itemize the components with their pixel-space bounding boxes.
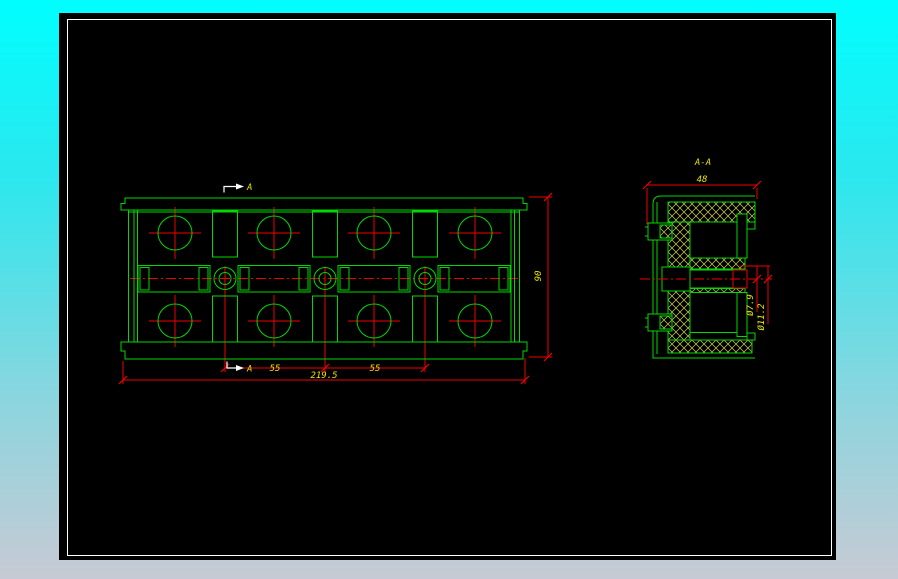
front-view: 55 55 219.5 90 A — [119, 183, 552, 384]
dim-overall-height: 90 — [529, 193, 552, 361]
section-marker-bottom-label: A — [246, 365, 252, 375]
top-slots — [213, 211, 438, 257]
section-marker-top-label: A — [246, 183, 252, 193]
section-view-title: A-A — [694, 158, 711, 168]
cad-drawing-canvas[interactable]: 55 55 219.5 90 A — [59, 13, 836, 560]
section-marker-top: A — [224, 183, 252, 193]
dim-text-section-width: 48 — [697, 175, 708, 185]
desktop-background: 55 55 219.5 90 A — [0, 0, 898, 579]
section-screw — [640, 267, 772, 291]
section-view: A-A 48 — [640, 158, 772, 358]
dim-text-overall-width: 219.5 — [310, 371, 337, 381]
dim-text-pitch-1: 55 — [270, 364, 281, 374]
dim-text-pitch-2: 55 — [370, 364, 381, 374]
cad-drawing: 55 55 219.5 90 A — [59, 13, 836, 560]
section-marker-bottom: A — [227, 362, 252, 375]
dim-text-inner-dia: Ø7.9 — [745, 294, 756, 316]
dim-overall-width: 219.5 — [119, 358, 529, 384]
dim-text-outer-dia: Ø11.2 — [756, 303, 767, 330]
dim-text-overall-height: 90 — [534, 271, 544, 282]
